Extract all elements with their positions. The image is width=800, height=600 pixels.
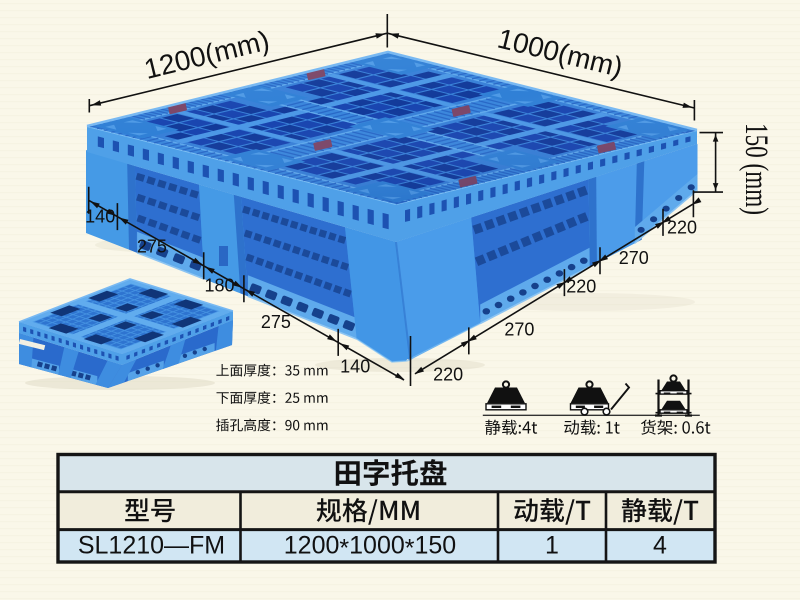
svg-text:220: 220 [566, 276, 596, 296]
svg-text:180: 180 [204, 276, 234, 296]
svg-text:140: 140 [340, 357, 370, 377]
svg-text:4: 4 [653, 532, 667, 560]
svg-text:270: 270 [619, 248, 649, 268]
svg-text:220: 220 [667, 217, 697, 237]
svg-text:140: 140 [85, 207, 115, 227]
svg-text:270: 270 [504, 319, 534, 339]
svg-text:150 (mm): 150 (mm) [738, 123, 774, 215]
svg-text:275: 275 [261, 312, 291, 332]
svg-text:1200*1000*150: 1200*1000*150 [284, 532, 456, 563]
svg-text:SL1210—FM: SL1210—FM [78, 532, 225, 560]
svg-text:220: 220 [433, 364, 463, 384]
svg-text:275: 275 [137, 237, 167, 257]
svg-text:1: 1 [545, 532, 559, 560]
